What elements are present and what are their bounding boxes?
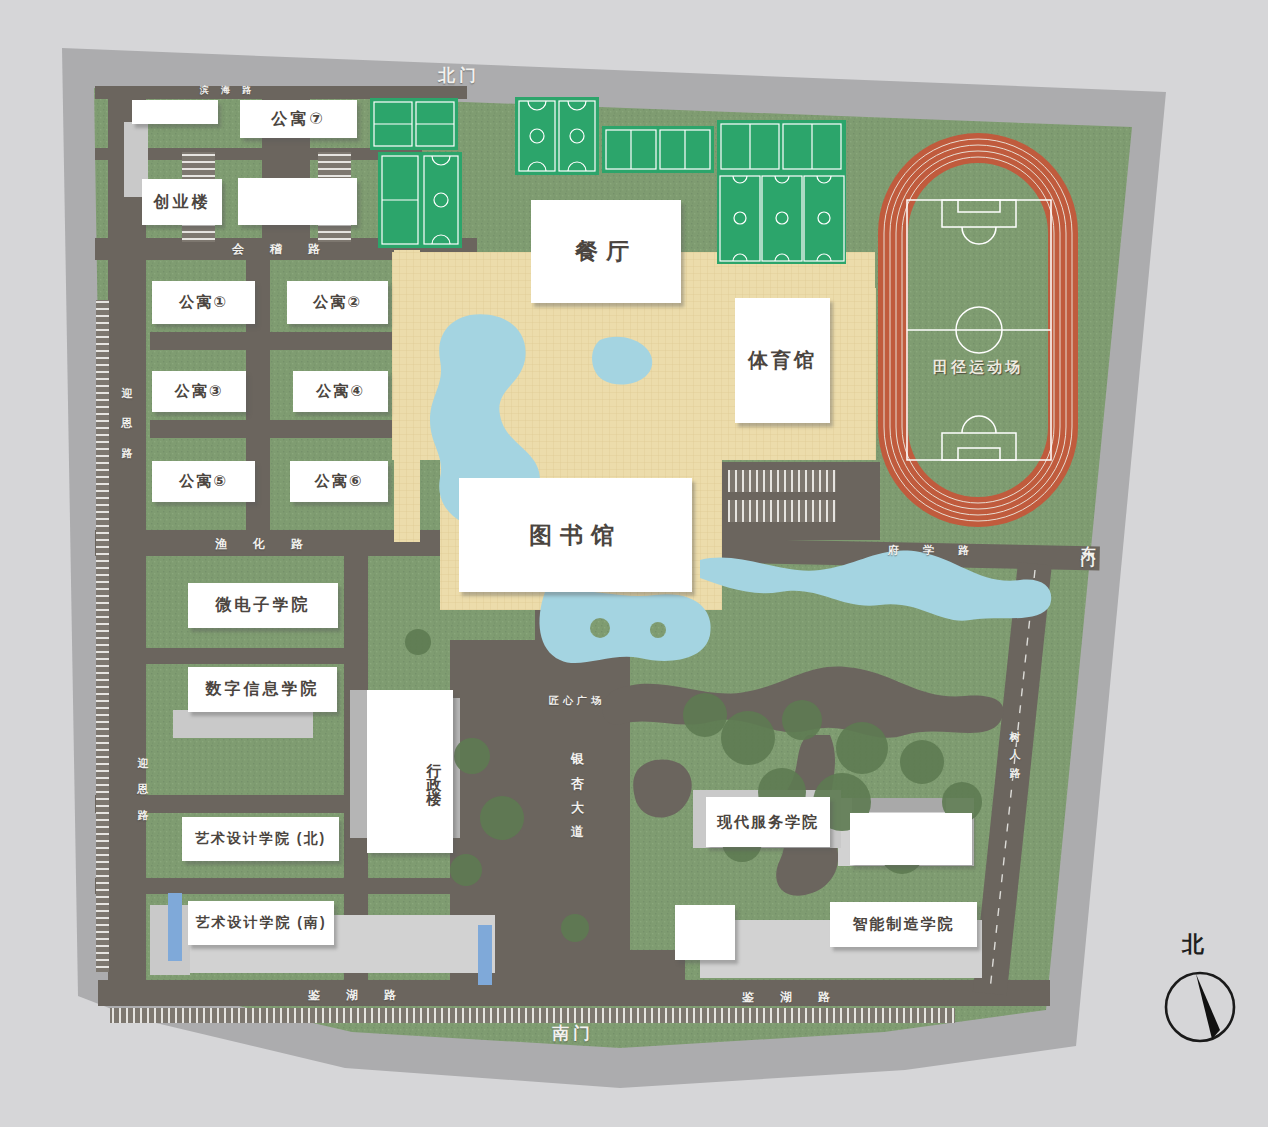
- campus-map: 公寓⑦ 创业楼 公寓① 公寓② 公寓③ 公寓④ 公寓⑤ 公寓⑥ 餐厅 体育馆 图…: [0, 0, 1268, 1127]
- road-label-yuhua: 渔化路: [215, 536, 329, 553]
- building-unlabeled: [238, 178, 357, 225]
- compass: 北: [1150, 930, 1250, 1060]
- building-canting: 餐厅: [531, 200, 681, 303]
- road-label-yingen-lower: 迎恩路: [135, 748, 150, 826]
- building-yishu-north: 艺术设计学院 (北): [182, 817, 339, 861]
- building-gongyu-2: 公寓②: [287, 281, 388, 324]
- road-label-fuxue: 府学路: [888, 543, 993, 558]
- building-unlabeled: [850, 813, 972, 865]
- building-unlabeled: [675, 905, 735, 960]
- building-gongyu-4: 公寓④: [293, 371, 388, 412]
- road-label-jianhu-east: 鉴湖路: [742, 989, 856, 1006]
- road-label-yinxing: 银杏大道: [568, 742, 586, 838]
- building-tushuguan: 图书馆: [459, 478, 692, 592]
- building-gongyu-1: 公寓①: [152, 281, 255, 324]
- road-label-binhai: 滨海路: [200, 84, 263, 97]
- road-label-yingen-upper: 迎恩路: [119, 378, 134, 468]
- building-tiyuguan: 体育馆: [735, 298, 830, 423]
- east-gate-label: 东门: [1078, 532, 1097, 544]
- compass-north-label: 北: [1136, 930, 1250, 960]
- building-weidianzi: 微电子学院: [188, 583, 338, 628]
- building-unlabeled: [132, 100, 218, 124]
- building-gongyu-5: 公寓⑤: [152, 461, 255, 502]
- north-gate-label: 北门: [438, 64, 480, 87]
- building-xiandai: 现代服务学院: [706, 797, 830, 847]
- compass-icon: [1155, 960, 1245, 1050]
- road-label-shuren: 树人路: [1007, 722, 1022, 776]
- building-zhineng: 智能制造学院: [830, 902, 977, 947]
- pond-island: [650, 622, 666, 638]
- road-label-huiji: 会稽路: [232, 241, 346, 258]
- south-gate-label: 南门: [552, 1022, 594, 1045]
- building-xingzheng: 行政楼: [367, 690, 453, 853]
- building-gongyu-7: 公寓⑦: [240, 100, 357, 138]
- building-shuzi: 数字信息学院: [188, 667, 337, 712]
- pond-island: [590, 618, 610, 638]
- road-label-jianhu-west: 鉴湖路: [308, 987, 422, 1004]
- track-field-label: 田径运动场: [905, 358, 1051, 377]
- building-gongyu-3: 公寓③: [152, 371, 246, 412]
- building-chuangye: 创业楼: [142, 179, 222, 225]
- building-yishu-south: 艺术设计学院 (南): [188, 901, 334, 945]
- athletics-track: [878, 133, 1078, 527]
- building-gongyu-6: 公寓⑥: [290, 461, 388, 502]
- plaza-label-jiangxin: 匠心广场: [549, 694, 605, 708]
